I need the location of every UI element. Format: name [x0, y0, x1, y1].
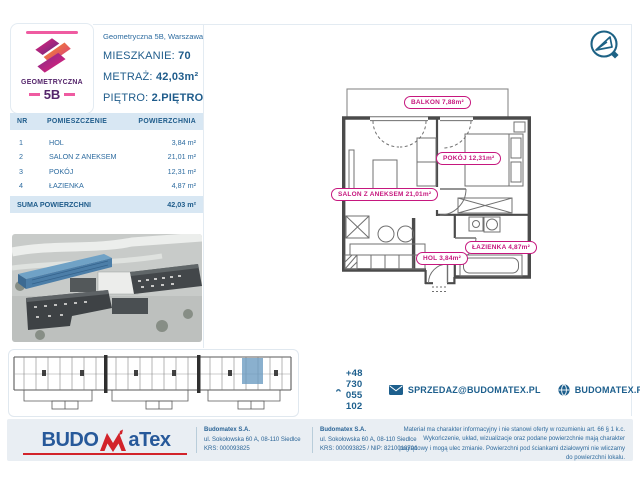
aerial-photo-drawing: [12, 234, 202, 342]
aerial-visualisation-photo: [12, 234, 202, 342]
website-link[interactable]: BUDOMATEX.PL: [558, 384, 640, 396]
frame-top-line: [93, 24, 631, 25]
website-address: BUDOMATEX.PL: [575, 385, 640, 395]
table-row: 1 HOL 3,84 m²: [10, 135, 203, 150]
table-total-row: SUMA POWIERZCHNI 42,03 m²: [10, 196, 203, 213]
row-room: SALON Z ANEKSEM: [49, 152, 168, 161]
area-label: METRAŻ:: [103, 71, 153, 83]
brand-m-icon: [98, 429, 128, 452]
label-balkon: BALKON 7,88m²: [404, 96, 471, 109]
apartment-number: 70: [178, 50, 191, 62]
envelope-icon: [389, 385, 403, 395]
apartment-label: MIESZKANIE:: [103, 50, 175, 62]
email-link[interactable]: SPRZEDAZ@BUDOMATEX.PL: [389, 385, 541, 395]
phone-icon: [336, 384, 341, 397]
flyer-page: GEOMETRYCZNA 5B Geometryczna 5B, Warszaw…: [0, 0, 640, 480]
row-area: 21,01 m²: [168, 152, 196, 161]
row-nr: 3: [17, 167, 49, 176]
contact-row: +48 730 055 102 SPRZEDAZ@BUDOMATEX.PL BU…: [336, 381, 640, 399]
table-row: 4 ŁAZIENKA 4,87 m²: [10, 179, 203, 194]
label-hol: HOL 3,84m²: [416, 252, 468, 265]
table-header-row: NR POMIESZCZENIE POWIERZCHNIA: [10, 113, 203, 130]
geometryczna-logo-icon: [27, 34, 77, 78]
floor-value: 2.PIĘTRO: [152, 92, 204, 104]
brand-underline: [23, 453, 187, 456]
frame-right-line: [631, 24, 632, 416]
brand-suffix: aTex: [128, 429, 170, 452]
company-registry: KRS: 000093825: [204, 445, 312, 455]
phone-number: +48 730 055 102: [346, 368, 372, 412]
label-salon: SALON Z ANEKSEM 21,01m²: [331, 188, 438, 201]
globe-icon: [558, 384, 570, 396]
footer-divider: [196, 427, 197, 453]
row-room: HOL: [49, 138, 172, 147]
label-pokoj: POKÓJ 12,31m²: [436, 152, 501, 165]
floor-line: PIĘTRO: 2.PIĘTRO: [103, 92, 203, 104]
left-column-divider: [203, 24, 204, 348]
row-nr: 1: [17, 138, 49, 147]
logo-number: 5B: [44, 87, 61, 102]
row-area: 3,84 m²: [172, 138, 196, 147]
row-area: 4,87 m²: [172, 181, 196, 190]
footer-bar: BUDO aTex Budomatex S.A. ul. Sokołowska …: [7, 419, 633, 461]
col-area: POWIERZCHNIA: [138, 118, 196, 125]
highlighted-unit: [242, 358, 263, 384]
row-nr: 4: [17, 181, 49, 190]
compass-icon: [588, 28, 624, 66]
label-lazienka: ŁAZIENKA 4,87m²: [465, 241, 537, 254]
company-address: ul. Sokołowska 60 A, 08-110 Siedlce: [204, 436, 312, 446]
row-nr: 2: [17, 152, 49, 161]
rooms-table: NR POMIESZCZENIE POWIERZCHNIA 1 HOL 3,84…: [10, 113, 203, 213]
footer-divider: [312, 427, 313, 453]
email-address: SPRZEDAZ@BUDOMATEX.PL: [408, 385, 541, 395]
address-line: Geometryczna 5B, Warszawa: [103, 32, 203, 41]
floor-overview-card: [8, 349, 299, 417]
floor-overview-drawing: [12, 354, 293, 412]
table-row: 3 POKÓJ 12,31 m²: [10, 164, 203, 179]
area-value: 42,03m²: [156, 71, 198, 83]
floor-label: PIĘTRO:: [103, 92, 148, 104]
total-area: 42,03 m²: [167, 200, 196, 209]
col-nr: NR: [17, 118, 47, 125]
row-room: POKÓJ: [49, 167, 168, 176]
development-logo-card: GEOMETRYCZNA 5B: [10, 23, 94, 114]
logo-number-row: 5B: [29, 87, 76, 102]
company-block-1: Budomatex S.A. ul. Sokołowska 60 A, 08-1…: [204, 426, 312, 455]
apartment-line: MIESZKANIE: 70: [103, 50, 191, 62]
logo-dash-left: [29, 93, 40, 96]
total-label: SUMA POWIERZCHNI: [17, 200, 167, 209]
row-room: ŁAZIENKA: [49, 181, 172, 190]
company-name: Budomatex S.A.: [204, 426, 312, 436]
phone-link[interactable]: +48 730 055 102: [336, 368, 372, 412]
logo-dash-right: [64, 93, 75, 96]
budomatex-logo: BUDO aTex: [21, 425, 191, 455]
col-room: POMIESZCZENIE: [47, 118, 138, 125]
brand-prefix: BUDO: [42, 429, 99, 452]
logo-name: GEOMETRYCZNA: [21, 79, 83, 86]
row-area: 12,31 m²: [168, 167, 196, 176]
area-line: METRAŻ: 42,03m²: [103, 71, 198, 83]
table-body: 1 HOL 3,84 m² 2 SALON Z ANEKSEM 21,01 m²…: [10, 130, 203, 196]
table-row: 2 SALON Z ANEKSEM 21,01 m²: [10, 150, 203, 165]
legal-disclaimer: Materiał ma charakter informacyjny i nie…: [393, 426, 625, 463]
floorplan-drawing: [325, 86, 540, 318]
